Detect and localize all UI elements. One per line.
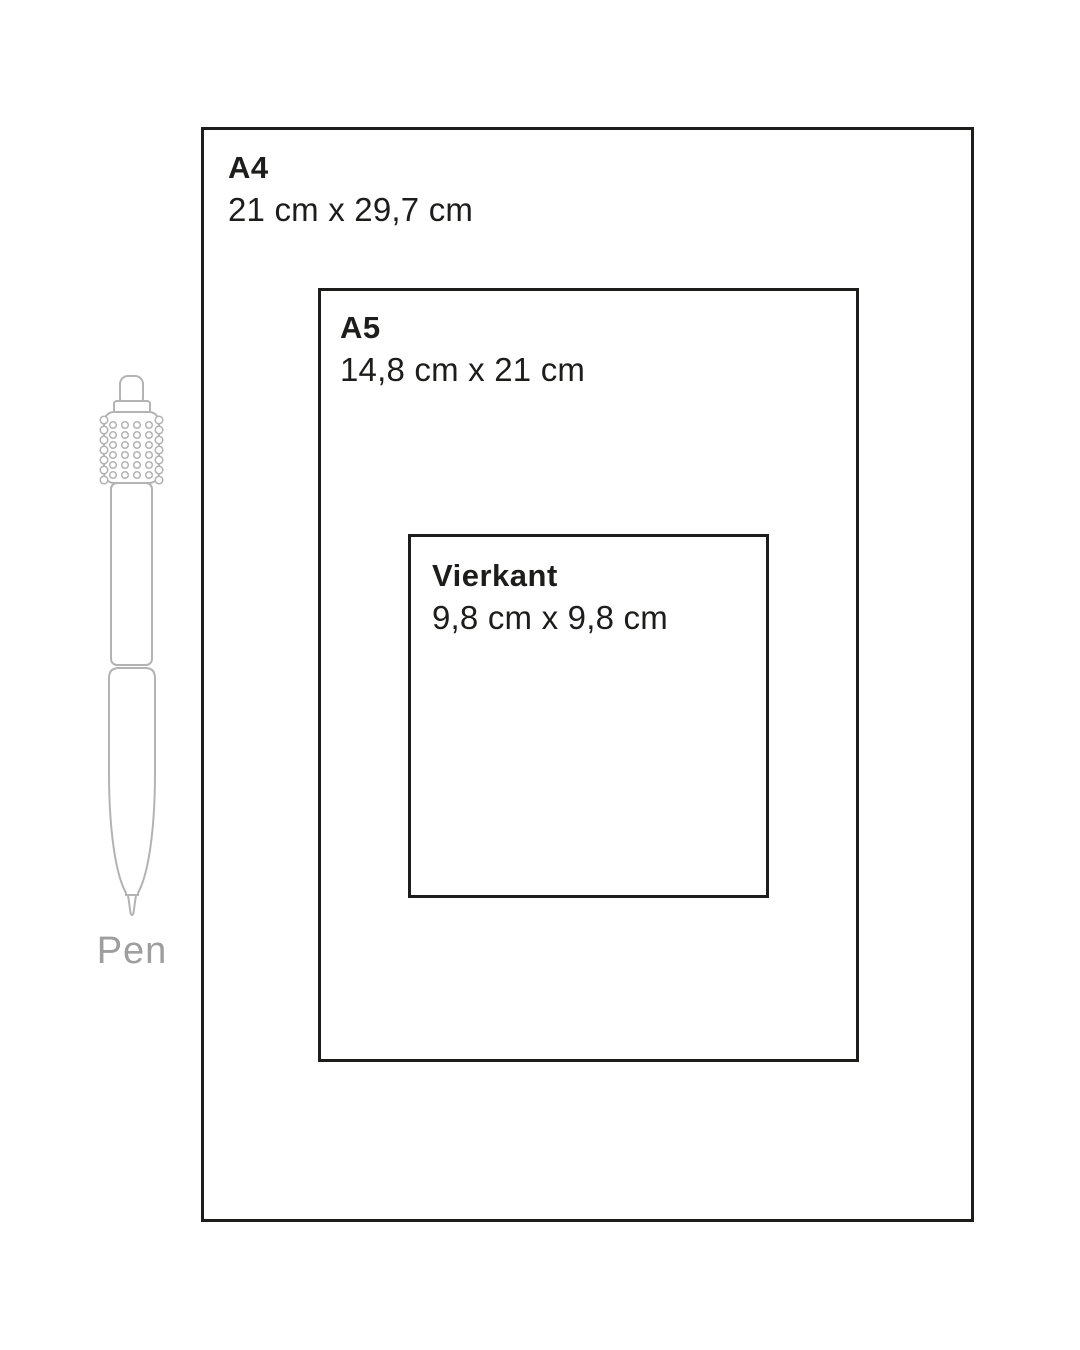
vierkant-label-block: Vierkant 9,8 cm x 9,8 cm: [432, 556, 668, 640]
pen-icon: [93, 372, 169, 928]
a4-label-block: A4 21 cm x 29,7 cm: [228, 148, 473, 232]
size-comparison-diagram: A4 21 cm x 29,7 cm A5 14,8 cm x 21 cm Vi…: [0, 0, 1080, 1350]
a5-label: A5: [340, 308, 585, 348]
vierkant-label: Vierkant: [432, 556, 668, 596]
vierkant-dimensions: 9,8 cm x 9,8 cm: [432, 596, 668, 640]
a5-label-block: A5 14,8 cm x 21 cm: [340, 308, 585, 392]
a5-dimensions: 14,8 cm x 21 cm: [340, 348, 585, 392]
a4-dimensions: 21 cm x 29,7 cm: [228, 188, 473, 232]
a4-label: A4: [228, 148, 473, 188]
pen-label: Pen: [66, 930, 198, 973]
